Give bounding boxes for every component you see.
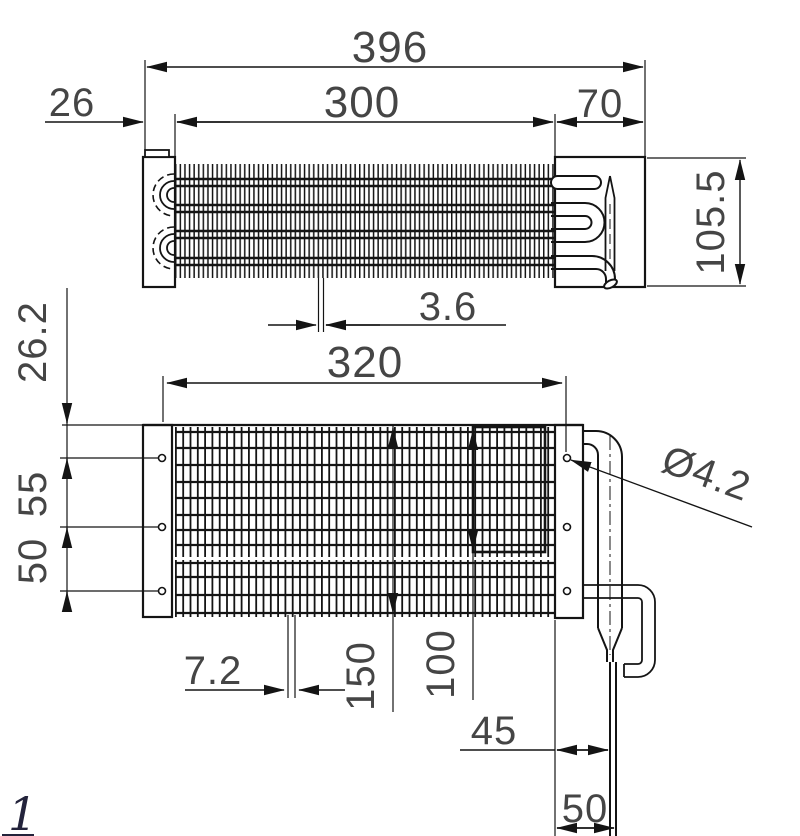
dim-height-label: 105.5 bbox=[689, 169, 733, 274]
bottom-view bbox=[143, 425, 655, 836]
dim-coil-height-label: 150 bbox=[339, 641, 383, 711]
bottom-view-fins-lower bbox=[175, 560, 555, 617]
dim-fin-pitch-bottom-label: 7.2 bbox=[184, 649, 243, 693]
evaporator-coil-drawing: 396 300 70 26 105.5 3.6 320 26.2 55 50 Ø… bbox=[0, 0, 800, 836]
figure-number: 1 bbox=[2, 787, 37, 836]
top-view-left-plate bbox=[143, 157, 175, 287]
dim-tube-offset-inner-label: 45 bbox=[471, 709, 518, 753]
top-view bbox=[143, 150, 645, 290]
dim-header-length-label: 70 bbox=[577, 82, 624, 126]
bottom-view-fins-upper bbox=[175, 427, 555, 557]
figure-number-label: 1 bbox=[8, 787, 37, 836]
suction-pipe bbox=[583, 431, 622, 836]
dim-hole-spacing-lower-label: 50 bbox=[11, 538, 55, 585]
dim-tube-offset-outer-label: 50 bbox=[562, 787, 609, 831]
dim-fin-length-top-label: 300 bbox=[324, 78, 400, 127]
dim-fin-pitch-top-label: 3.6 bbox=[419, 285, 478, 329]
dim-left-offset-label: 26 bbox=[49, 81, 96, 125]
dim-overall-length-label: 396 bbox=[352, 23, 428, 72]
dim-hole-spacing-upper-label: 55 bbox=[11, 471, 55, 518]
capillary-loop bbox=[583, 585, 655, 677]
dim-fin-length-bottom-label: 320 bbox=[327, 338, 403, 387]
dim-hole-offset-top-label: 26.2 bbox=[11, 301, 55, 383]
bottom-view-left-plate bbox=[143, 425, 172, 617]
dim-section-height-label: 100 bbox=[419, 629, 463, 699]
top-view-left-plate-tab bbox=[145, 150, 169, 157]
top-view-fins bbox=[175, 164, 555, 278]
dim-hole-diameter-label: Ø4.2 bbox=[656, 438, 756, 510]
technical-drawing-canvas: 396 300 70 26 105.5 3.6 320 26.2 55 50 Ø… bbox=[0, 0, 800, 836]
